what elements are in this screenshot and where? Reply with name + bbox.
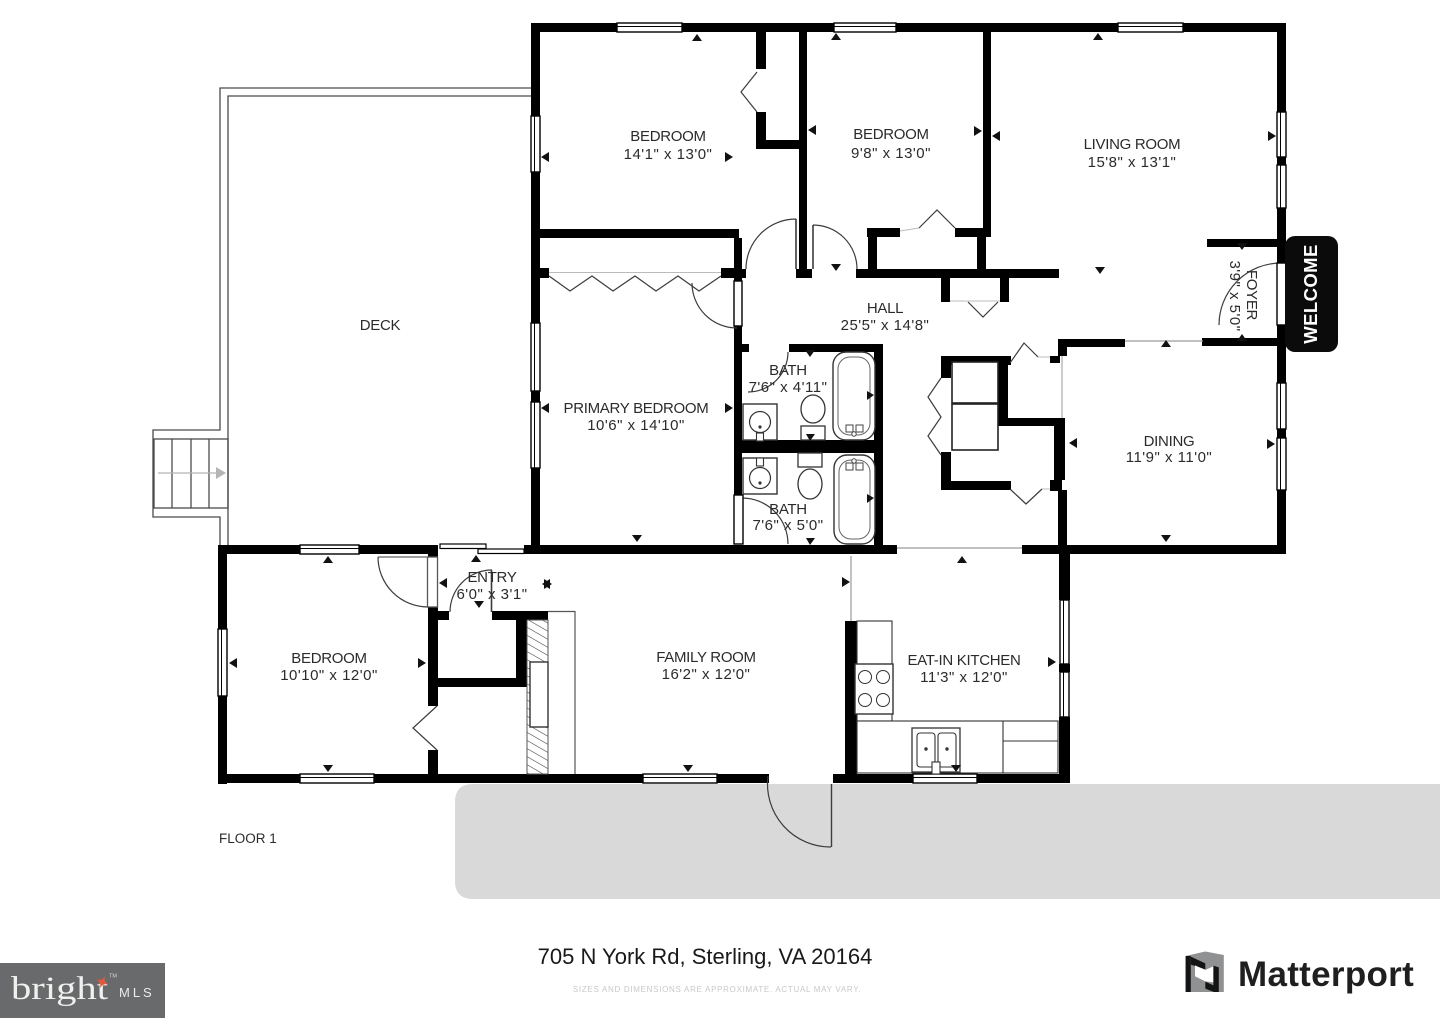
svg-text:EAT-IN KITCHEN: EAT-IN KITCHEN (907, 652, 1020, 669)
svg-text:LIVING ROOM: LIVING ROOM (1084, 136, 1181, 153)
svg-text:705 N York Rd, Sterling, VA 20: 705 N York Rd, Sterling, VA 20164 (538, 944, 873, 969)
svg-text:16'2" x 12'0": 16'2" x 12'0" (662, 666, 751, 683)
svg-text:FLOOR 1: FLOOR 1 (219, 831, 277, 846)
svg-text:BEDROOM: BEDROOM (853, 126, 928, 143)
svg-text:WELCOME: WELCOME (1300, 244, 1321, 343)
svg-text:25'5" x 14'8": 25'5" x 14'8" (841, 317, 930, 334)
svg-text:10'6" x 14'10": 10'6" x 14'10" (587, 417, 685, 434)
svg-text:SIZES AND DIMENSIONS ARE APPRO: SIZES AND DIMENSIONS ARE APPROXIMATE. AC… (573, 985, 861, 994)
svg-text:11'3" x 12'0": 11'3" x 12'0" (920, 669, 1008, 686)
svg-text:7'6" x 5'0": 7'6" x 5'0" (752, 517, 823, 534)
svg-text:PRIMARY BEDROOM: PRIMARY BEDROOM (564, 400, 709, 417)
svg-text:FAMILY ROOM: FAMILY ROOM (656, 649, 756, 666)
svg-text:9'8" x 13'0": 9'8" x 13'0" (851, 145, 931, 162)
svg-text:BATH: BATH (769, 362, 807, 379)
svg-text:FOYER: FOYER (1243, 270, 1260, 321)
svg-text:BEDROOM: BEDROOM (630, 128, 705, 145)
svg-text:BATH: BATH (769, 501, 807, 518)
svg-text:15'8" x 13'1": 15'8" x 13'1" (1088, 154, 1177, 171)
svg-text:HALL: HALL (867, 300, 903, 317)
svg-text:10'10" x 12'0": 10'10" x 12'0" (280, 667, 378, 684)
svg-text:Matterport: Matterport (1238, 955, 1414, 994)
svg-text:TM: TM (109, 974, 117, 980)
svg-text:DECK: DECK (360, 317, 401, 334)
svg-text:6'0" x 3'1": 6'0" x 3'1" (456, 586, 527, 603)
svg-text:DINING: DINING (1144, 433, 1195, 450)
svg-text:bright: bright (11, 971, 108, 1007)
svg-text:BEDROOM: BEDROOM (291, 650, 366, 667)
svg-text:14'1" x 13'0": 14'1" x 13'0" (624, 146, 713, 163)
svg-text:MLS: MLS (119, 985, 155, 1000)
svg-text:3'9" x 5'0": 3'9" x 5'0" (1226, 260, 1243, 331)
svg-text:ENTRY: ENTRY (467, 569, 516, 586)
svg-text:11'9" x 11'0": 11'9" x 11'0" (1126, 449, 1213, 466)
svg-text:7'6" x 4'11": 7'6" x 4'11" (749, 379, 828, 396)
